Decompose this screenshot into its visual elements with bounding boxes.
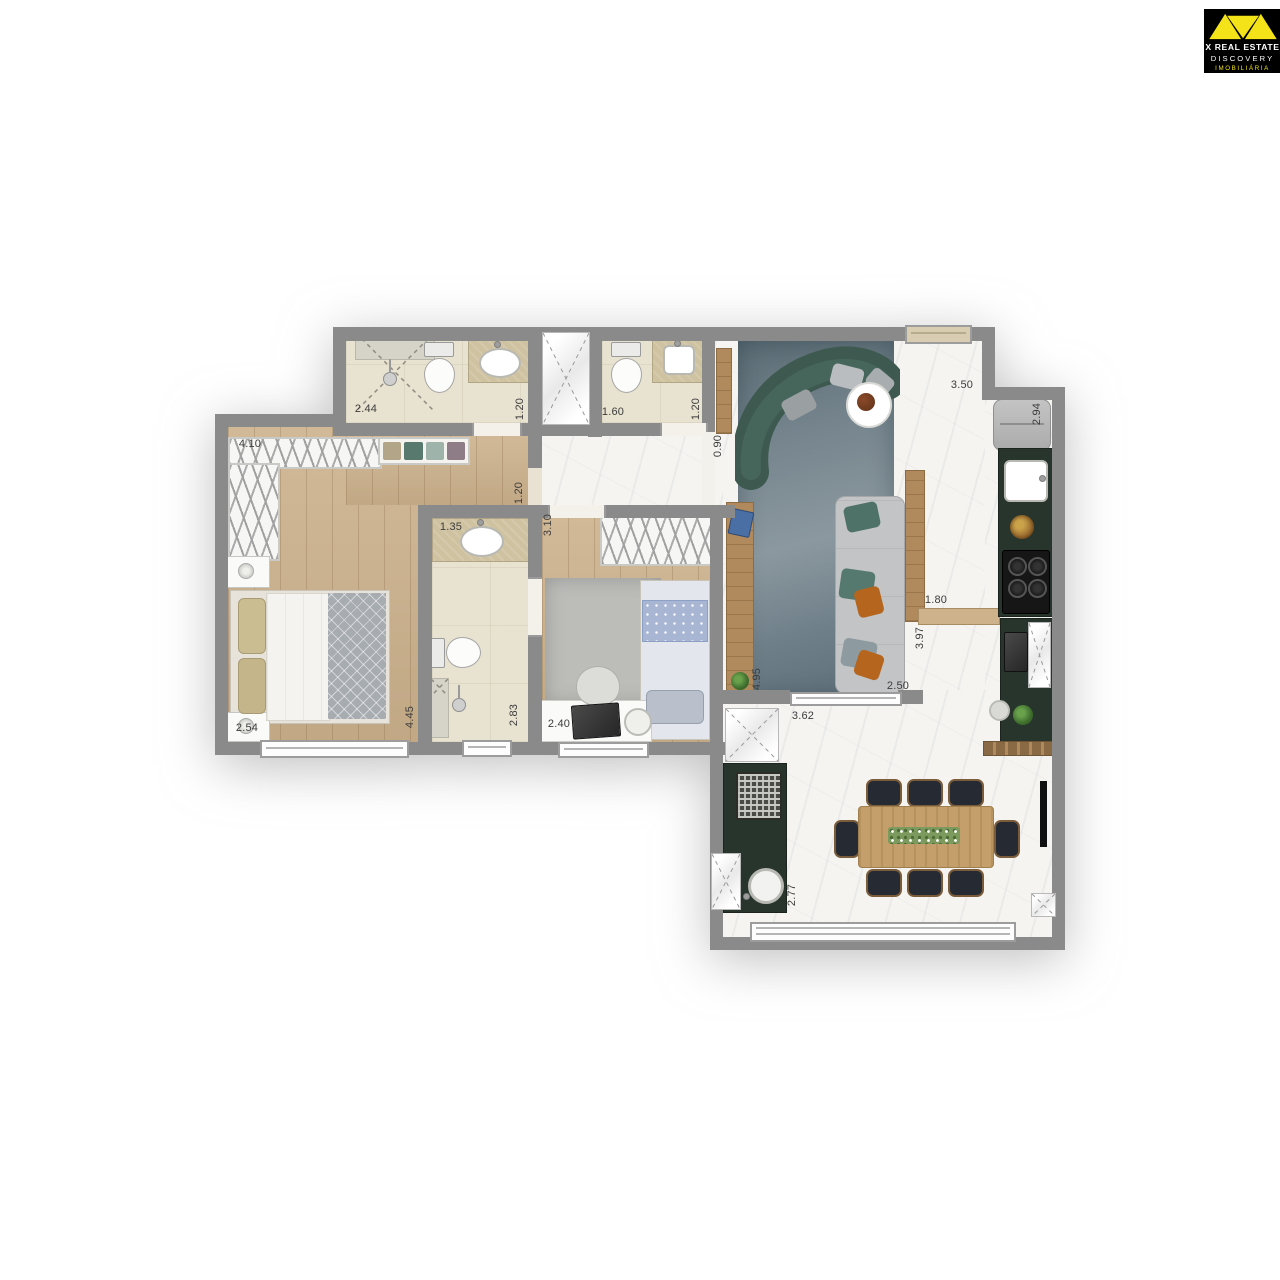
bedroom2-wardrobe	[600, 512, 712, 566]
dimension-label: 3.10	[542, 514, 554, 536]
hatch-x-icon	[1029, 623, 1050, 687]
logo-title: X REAL ESTATE	[1205, 42, 1279, 52]
grill-icon	[736, 772, 782, 820]
window-rail	[911, 332, 966, 334]
bedroom2-desk-chair	[576, 666, 620, 706]
master-window	[260, 740, 409, 758]
wall	[1052, 387, 1065, 950]
toilet-tank	[424, 342, 454, 357]
kitchen-shaft	[1028, 622, 1051, 688]
coffee-machine-icon	[1004, 632, 1028, 672]
cooktop	[1002, 550, 1050, 614]
fruit-bowl-icon	[1010, 515, 1034, 539]
dimension-label: 2.54	[236, 722, 258, 734]
kettle-icon	[989, 700, 1010, 721]
wall	[710, 505, 723, 704]
dining-chair	[866, 779, 902, 807]
kitchen-plant-icon	[1013, 705, 1033, 725]
hatch-x-icon	[431, 679, 448, 696]
wall	[333, 327, 346, 436]
dimension-label: 4.10	[239, 438, 261, 450]
bedroom2-blanket	[642, 600, 708, 642]
window-rail	[796, 697, 896, 699]
dimension-label: 2.50	[887, 680, 909, 692]
dimension-label: 3.62	[792, 710, 814, 722]
dimension-label: 1.80	[925, 594, 947, 606]
dining-service-hatch	[711, 853, 741, 910]
wall	[215, 414, 228, 755]
dining-chair	[907, 779, 943, 807]
dimension-label: 0.90	[712, 435, 724, 457]
wall	[702, 327, 715, 437]
living-low-cabinet	[918, 608, 1000, 625]
window-rail	[266, 747, 403, 749]
tv	[1040, 781, 1047, 847]
master-lamp-icon	[238, 563, 254, 579]
wall	[418, 505, 542, 518]
window-rail	[756, 933, 1010, 935]
master-closet-left	[228, 463, 280, 561]
bath1-shower-head-icon	[383, 372, 397, 386]
bath1-sink	[479, 348, 521, 378]
bedroom2-pillow	[646, 690, 704, 724]
burner-icon	[1008, 579, 1027, 598]
master-duvet	[266, 593, 330, 721]
master-pillow	[238, 658, 266, 714]
logo: X REAL ESTATE DISCOVERY IMOBILIÁRIA	[1204, 9, 1280, 73]
toilet-bowl	[611, 358, 642, 393]
dimension-label: 2.40	[548, 718, 570, 730]
wall	[215, 414, 346, 427]
table-centerpiece	[888, 827, 960, 844]
hall-floor	[535, 436, 715, 506]
bath3-door-opening	[528, 577, 542, 637]
kitchen-sink	[1004, 460, 1048, 502]
bedroom2-door-opening	[548, 505, 606, 518]
bath2-faucet-icon	[675, 341, 680, 346]
bedroom2-stool	[624, 708, 652, 736]
dimension-label: 1.20	[690, 398, 702, 420]
folded-clothes	[447, 442, 465, 460]
logo-subtitle: DISCOVERY	[1211, 54, 1275, 63]
living-top-niche	[905, 325, 972, 344]
window-rail	[756, 927, 1010, 929]
floor-plan: 2.44 1.20 1.60 1.20 0.90 3.50 2.94 4.10 …	[0, 0, 1280, 1280]
wall	[528, 423, 542, 468]
dimension-label: 3.50	[951, 379, 973, 391]
dimension-label: 4.45	[404, 706, 416, 728]
master-closet-shelf	[378, 437, 470, 465]
dining-chair	[948, 869, 984, 897]
folded-clothes	[404, 442, 422, 460]
dimension-label: 1.60	[602, 406, 624, 418]
folded-clothes	[426, 442, 444, 460]
dining-chair	[866, 869, 902, 897]
coffee-table	[846, 382, 892, 428]
dimension-label: 1.20	[514, 398, 526, 420]
dining-chair	[907, 869, 943, 897]
living-entry-panel	[716, 348, 732, 434]
shaft-bathrooms	[542, 332, 590, 425]
sofa-back-panel	[905, 470, 925, 622]
hatch-x-icon	[712, 854, 740, 909]
wall	[588, 327, 602, 437]
laptop-icon	[571, 702, 621, 739]
dimension-label: 1.35	[440, 521, 462, 533]
kitchen-faucet-icon	[1040, 476, 1045, 481]
dimension-label: 4.95	[751, 668, 763, 690]
burner-icon	[1008, 557, 1027, 576]
window-rail	[468, 746, 506, 748]
dimension-label: 2.77	[786, 884, 798, 906]
logo-triangles-icon	[1207, 11, 1279, 41]
dining-chair	[948, 779, 984, 807]
bath1-door-opening	[472, 423, 522, 436]
bath2-toilet	[607, 342, 645, 393]
bar-stools	[983, 741, 1054, 756]
dimension-label: 1.20	[513, 482, 525, 504]
wall	[418, 505, 432, 755]
bath1-faucet-icon	[495, 342, 500, 347]
toilet-bowl	[446, 638, 481, 669]
wall	[710, 690, 723, 950]
dimension-label: 2.94	[1031, 403, 1043, 425]
toilet-tank	[611, 342, 641, 357]
hatch-x-icon	[1032, 894, 1055, 916]
bath3-sink	[460, 526, 504, 557]
hatch-x-icon	[543, 333, 589, 424]
master-pillow	[238, 598, 266, 654]
burner-icon	[1028, 557, 1047, 576]
logo-tagline: IMOBILIÁRIA	[1215, 65, 1270, 72]
wall	[982, 327, 995, 400]
bath3-shower-mat	[430, 678, 449, 738]
dining-corner-niche	[1031, 893, 1056, 917]
bath3-window	[462, 740, 512, 757]
dimension-label: 2.44	[355, 403, 377, 415]
bath3-faucet-icon	[478, 520, 483, 525]
window-rail	[564, 748, 643, 750]
dimension-label: 3.97	[914, 627, 926, 649]
dining-shaft	[725, 708, 779, 762]
dining-chair	[834, 820, 860, 858]
folded-clothes	[383, 442, 401, 460]
bath1-toilet	[420, 342, 458, 393]
wall	[333, 423, 715, 436]
bath3-shower-head-icon	[452, 698, 466, 712]
hatch-x-icon	[726, 709, 778, 761]
dining-chair	[994, 820, 1020, 858]
wall	[333, 327, 715, 341]
bath2-door-opening	[660, 423, 708, 436]
wall	[528, 327, 542, 437]
bath2-sink	[663, 345, 695, 375]
toilet-bowl	[424, 358, 455, 393]
gourmet-faucet-icon	[744, 894, 749, 899]
sideboard-plant-icon	[731, 672, 749, 690]
gourmet-sink	[748, 868, 784, 904]
toilet-tank	[430, 638, 445, 668]
dimension-label: 2.83	[508, 704, 520, 726]
master-hall-opening	[528, 468, 542, 505]
burner-icon	[1028, 579, 1047, 598]
bedroom2-window	[558, 742, 649, 758]
balcony-sliding-door	[750, 922, 1016, 942]
living-dining-threshold	[790, 692, 902, 706]
bath3-toilet	[430, 634, 481, 672]
master-quilt-runner	[328, 593, 386, 719]
